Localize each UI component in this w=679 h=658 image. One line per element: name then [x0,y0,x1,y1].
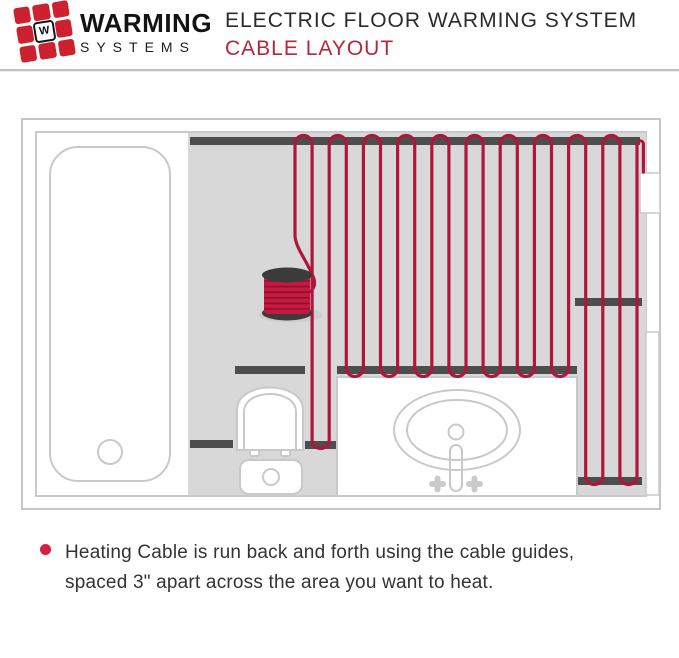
brand-bottom-text: SYSTEMS [80,38,210,56]
footnote: Heating Cable is run back and forth usin… [40,538,650,598]
logo-tile [19,44,38,63]
logo-w-tile: W [33,20,56,43]
logo-tile [16,25,35,44]
toilet-icon [237,388,303,495]
logo-tile [57,38,76,57]
title-line2: CABLE LAYOUT [225,35,637,63]
toilet-tank [240,460,302,494]
vanity-counter [337,377,577,496]
vanity-sink-icon [337,377,577,496]
footnote-line1: Heating Cable is run back and forth usin… [65,542,574,563]
wall-recess-top-right [640,173,660,213]
wall-recess-bottom-right [646,332,659,495]
logo-tile [51,0,70,19]
page-title: ELECTRIC FLOOR WARMING SYSTEM CABLE LAYO… [225,7,637,63]
footnote-line2: spaced 3" apart across the area you want… [65,572,493,593]
logo-w-letter: W [38,25,50,38]
page: W WARMING SYSTEMS ELECTRIC FLOOR WARMING… [0,0,679,658]
header-divider [0,69,679,72]
title-line1: ELECTRIC FLOOR WARMING SYSTEM [225,7,637,35]
brand-top-text: WARMING [80,9,210,37]
logo-tile [32,3,51,22]
cable-guide-vanity [337,366,577,374]
logo-tile [13,6,32,25]
bullet-icon [40,544,51,555]
logo-tile [54,19,73,38]
logo-tile [38,41,57,60]
brand-name: WARMING SYSTEMS [80,9,210,56]
cable-guide-toilet [235,366,305,374]
cable-guide-left [190,440,233,448]
cable-spool-icon [262,268,312,321]
cable-layout-diagram [0,108,679,520]
bathtub-icon [50,147,170,481]
warming-systems-logo-icon: W [13,0,76,63]
footnote-text: Heating Cable is run back and forth usin… [65,538,574,598]
